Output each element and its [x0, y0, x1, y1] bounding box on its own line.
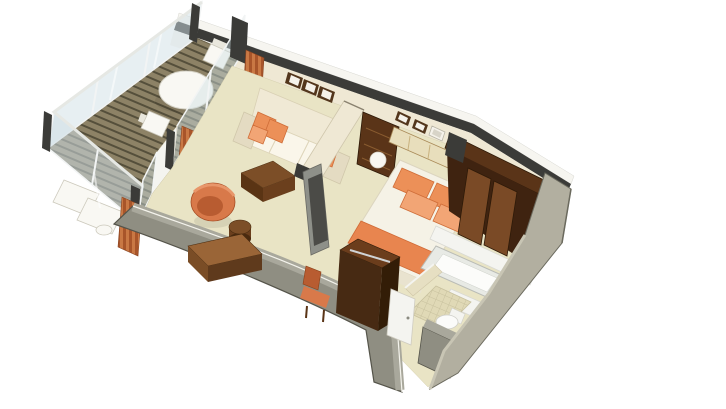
balcony-side-table	[96, 225, 112, 235]
suite-floorplan-image	[0, 0, 726, 409]
swivel-tub-chair	[191, 183, 235, 228]
side-table-top	[229, 220, 251, 234]
tub-chair-seat	[197, 196, 223, 216]
floorplan-svg	[0, 0, 726, 409]
sphere-lamp-left	[370, 152, 386, 168]
door-handle-icon	[407, 317, 410, 320]
entry-door	[387, 289, 415, 345]
